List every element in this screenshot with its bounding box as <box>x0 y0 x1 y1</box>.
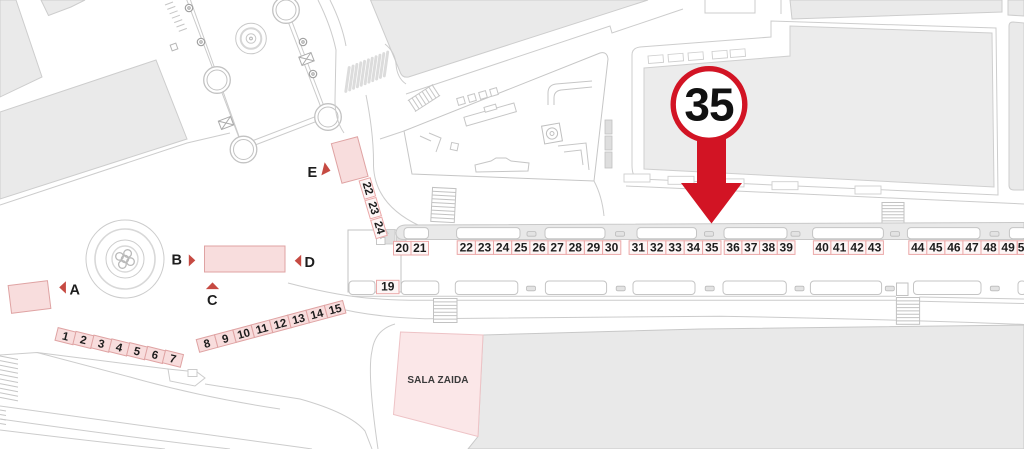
svg-text:E: E <box>308 165 318 181</box>
svg-text:37: 37 <box>744 240 758 254</box>
svg-text:32: 32 <box>650 240 664 254</box>
svg-text:35: 35 <box>705 240 719 254</box>
svg-text:49: 49 <box>1001 240 1015 254</box>
svg-text:50: 50 <box>1018 240 1024 254</box>
svg-text:33: 33 <box>668 240 682 254</box>
svg-text:48: 48 <box>983 240 997 254</box>
svg-text:42: 42 <box>850 240 864 254</box>
svg-text:40: 40 <box>815 240 829 254</box>
svg-text:35: 35 <box>684 79 734 131</box>
svg-text:38: 38 <box>762 240 776 254</box>
svg-text:28: 28 <box>569 240 583 254</box>
svg-text:D: D <box>305 255 315 271</box>
svg-text:23: 23 <box>478 240 492 254</box>
svg-text:27: 27 <box>550 240 564 254</box>
svg-text:22: 22 <box>460 240 474 254</box>
svg-text:31: 31 <box>632 240 646 254</box>
svg-text:39: 39 <box>780 240 794 254</box>
svg-text:47: 47 <box>965 240 979 254</box>
svg-text:19: 19 <box>381 280 395 294</box>
svg-text:43: 43 <box>868 240 882 254</box>
svg-text:20: 20 <box>396 241 410 255</box>
svg-text:SALA ZAIDA: SALA ZAIDA <box>407 375 468 386</box>
svg-text:B: B <box>172 253 182 269</box>
svg-text:41: 41 <box>833 240 847 254</box>
svg-text:36: 36 <box>726 240 740 254</box>
svg-text:34: 34 <box>687 240 701 254</box>
svg-text:24: 24 <box>496 240 510 254</box>
svg-text:30: 30 <box>605 240 619 254</box>
svg-text:21: 21 <box>413 241 427 255</box>
svg-text:26: 26 <box>532 240 546 254</box>
svg-text:46: 46 <box>947 240 961 254</box>
svg-text:45: 45 <box>929 240 943 254</box>
svg-text:44: 44 <box>911 240 925 254</box>
svg-text:29: 29 <box>587 240 601 254</box>
svg-text:A: A <box>70 283 81 299</box>
svg-text:25: 25 <box>514 240 528 254</box>
svg-text:C: C <box>207 293 218 309</box>
